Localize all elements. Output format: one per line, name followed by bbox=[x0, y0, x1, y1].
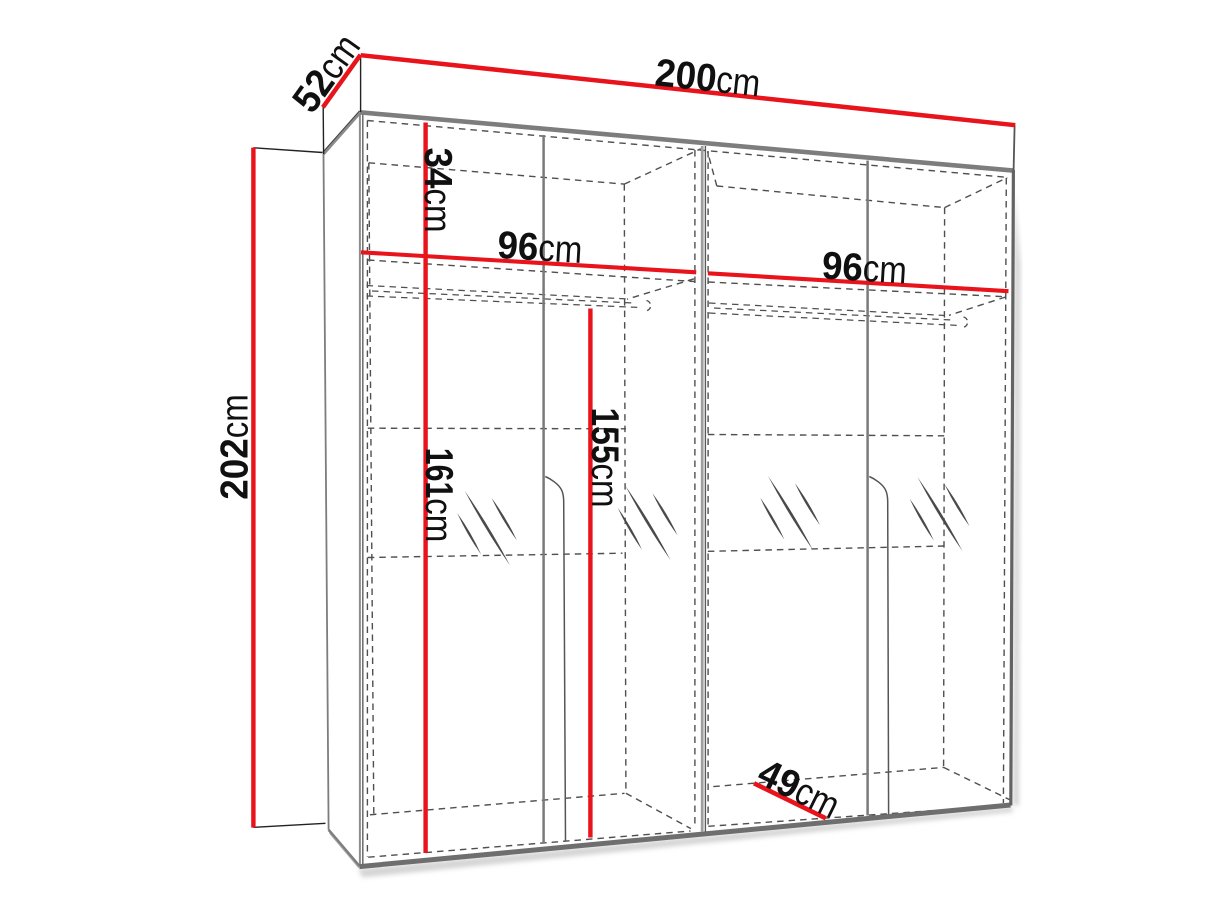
svg-text:155cm: 155cm bbox=[583, 408, 626, 508]
svg-text:96cm: 96cm bbox=[821, 244, 908, 292]
svg-text:161cm: 161cm bbox=[417, 448, 460, 543]
svg-text:52cm: 52cm bbox=[284, 26, 368, 120]
svg-text:49cm: 49cm bbox=[751, 751, 846, 827]
svg-text:202cm: 202cm bbox=[214, 394, 257, 500]
svg-text:34cm: 34cm bbox=[416, 148, 459, 233]
svg-text:96cm: 96cm bbox=[496, 224, 583, 272]
svg-text:200cm: 200cm bbox=[653, 52, 762, 106]
